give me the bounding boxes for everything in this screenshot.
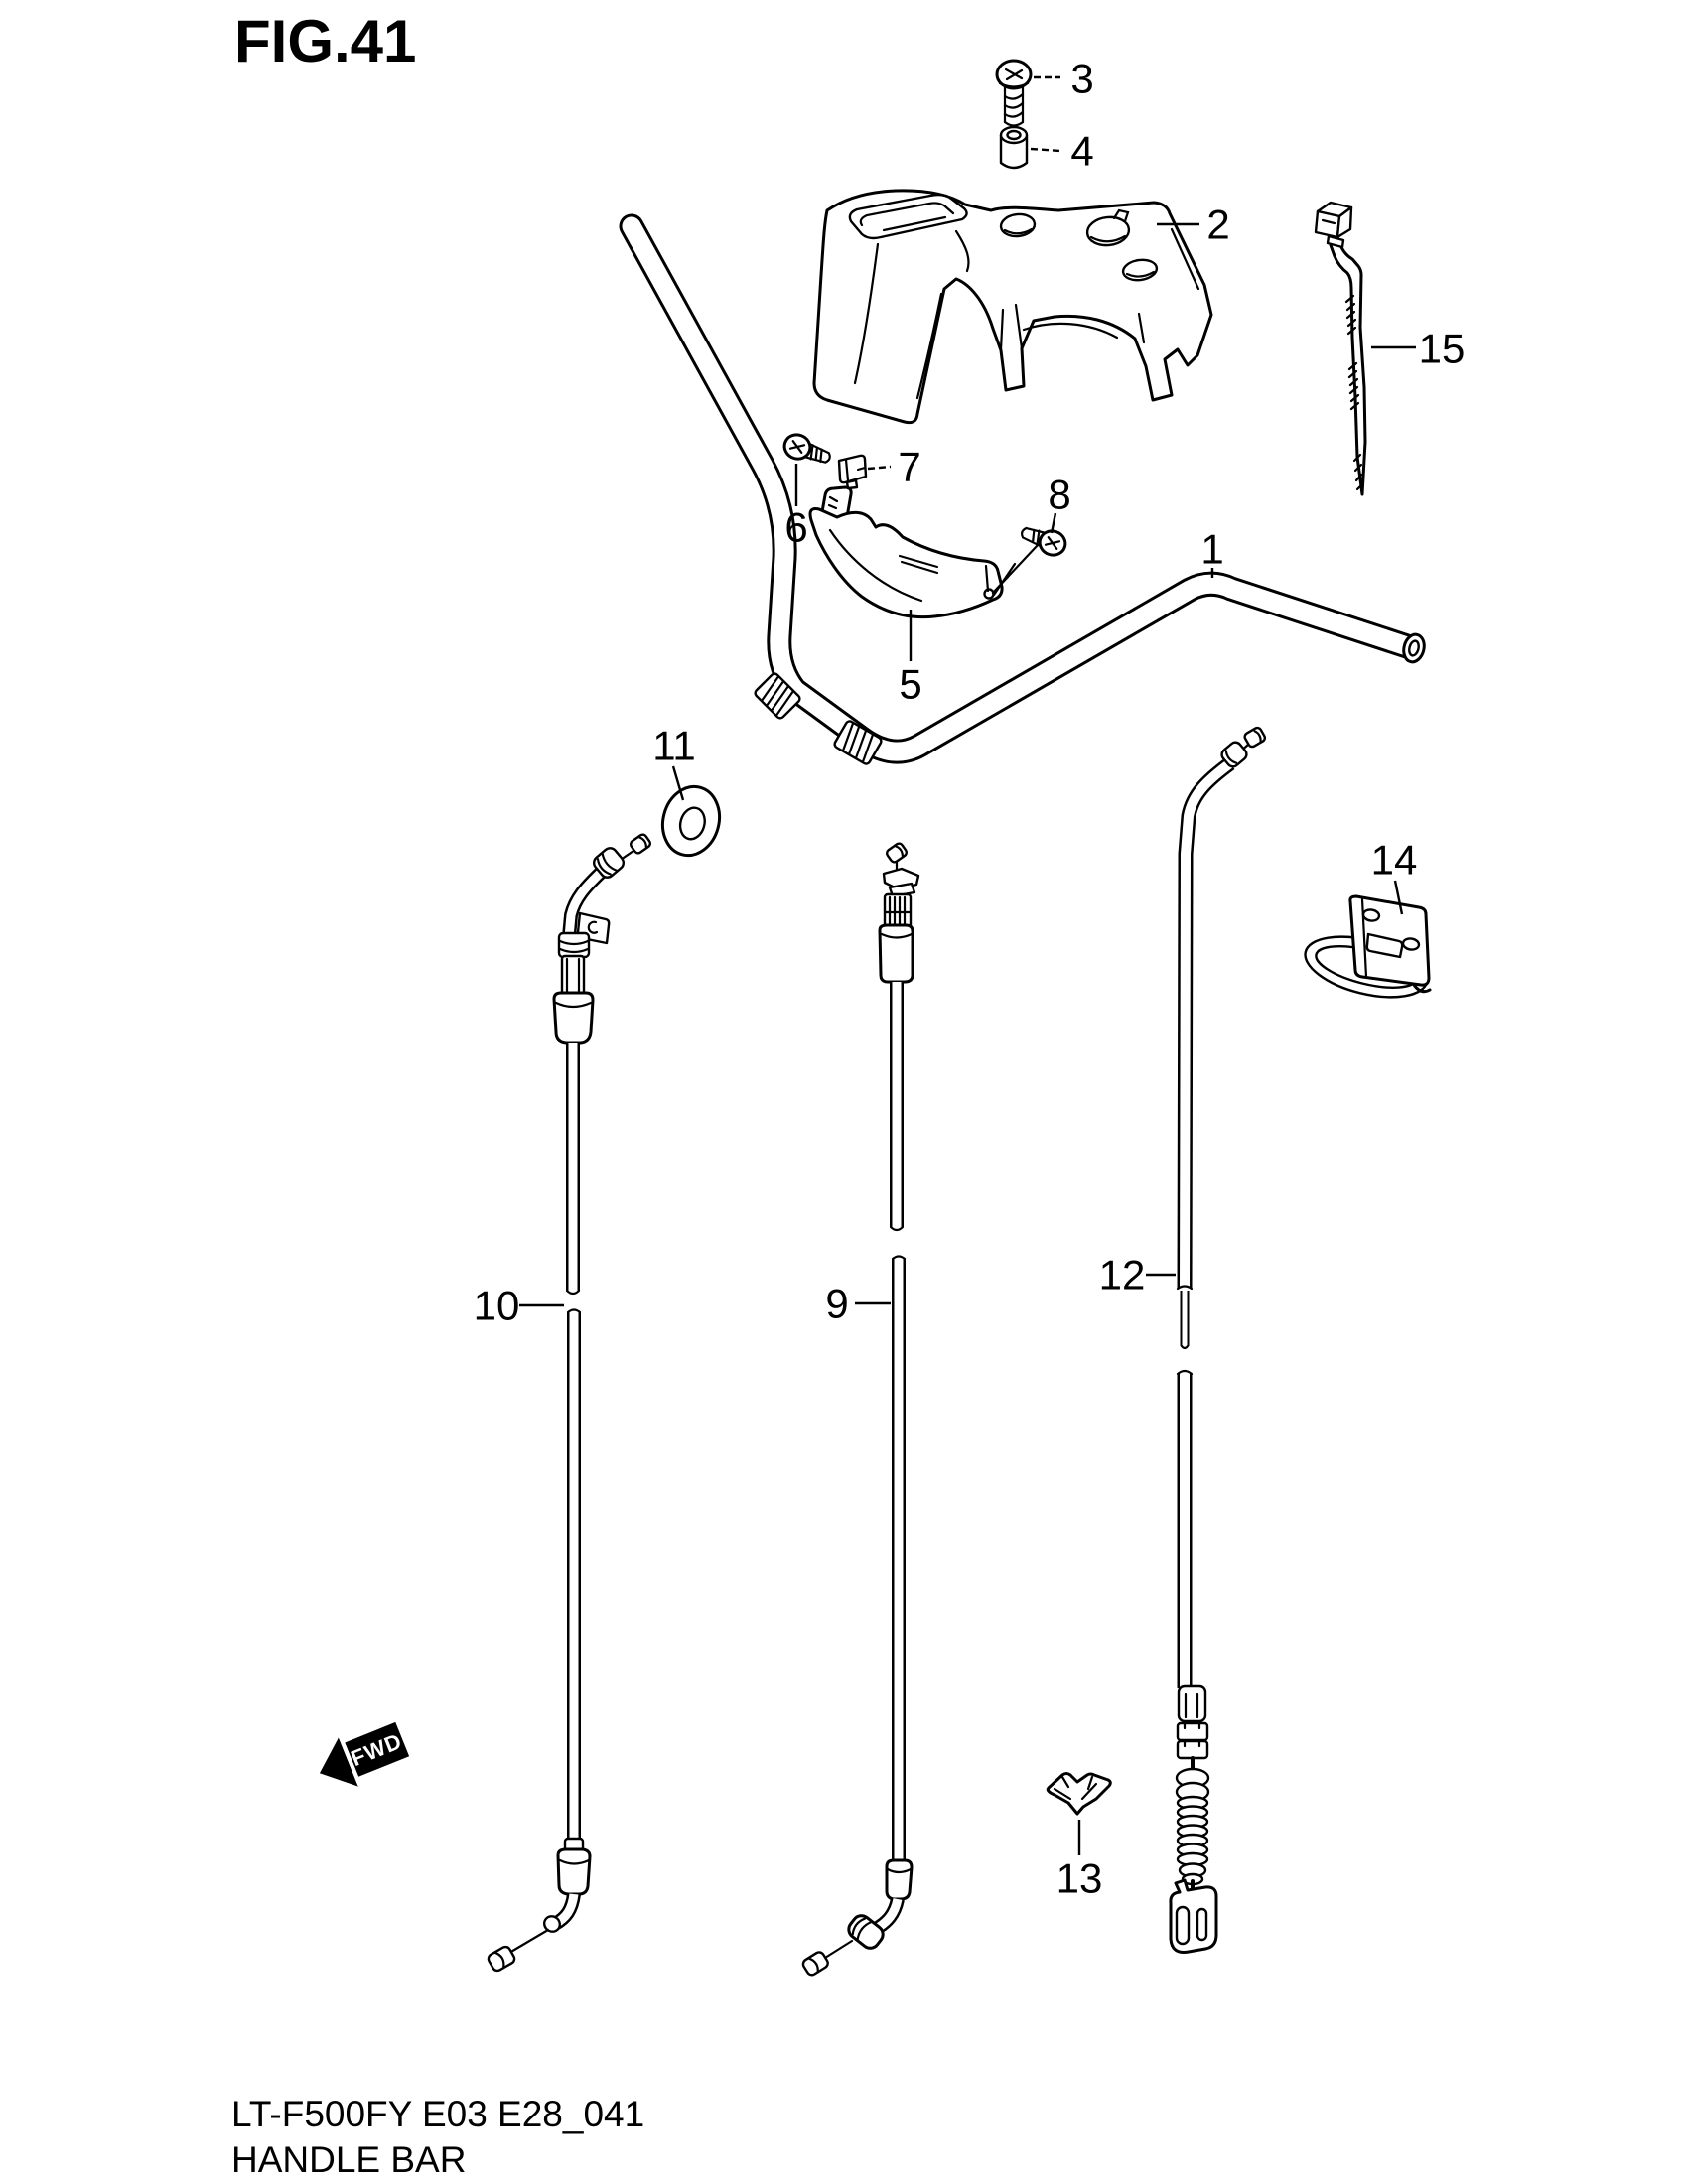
callout-2: 2 [1206,202,1229,248]
leader-lines [519,77,1416,1855]
handlebar-cover-drawing [814,191,1211,423]
screw-6-drawing [781,431,834,470]
leader-7 [868,467,891,469]
callout-5: 5 [899,661,921,708]
callout-12: 12 [1099,1252,1146,1298]
callout-13: 13 [1056,1855,1103,1902]
washer-drawing [655,780,727,862]
callout-1: 1 [1200,526,1223,573]
cable-9-drawing [801,842,918,1977]
callout-8: 8 [1048,472,1070,518]
screw-8-drawing [993,521,1068,595]
guard-drawing [810,487,1002,617]
parts-diagram-page: FWD 1 2 3 4 5 6 7 8 9 10 11 12 13 14 15 [0,0,1688,2184]
cable-tie-drawing [1316,203,1365,494]
spacer-drawing [1001,127,1027,168]
callout-4: 4 [1070,128,1093,175]
clamp-drawing [1048,1774,1110,1815]
callout-11: 11 [652,723,696,769]
clip-drawing [839,456,866,488]
cable-10-drawing [487,833,651,1973]
fwd-arrow: FWD [310,1715,412,1798]
parts-diagram: FWD 1 2 3 4 5 6 7 8 9 10 11 12 13 14 15 [0,0,1688,2184]
footer-figure-name: HANDLE BAR [231,2139,466,2180]
callout-10: 10 [474,1283,520,1329]
footer-model-code: LT-F500FY E03 E28_041 [231,2094,644,2134]
callout-labels: 1 2 3 4 5 6 7 8 9 10 11 12 13 14 15 [474,56,1466,1902]
bracket-drawing [1299,896,1433,1008]
callout-9: 9 [825,1281,848,1327]
leader-4 [1031,149,1060,151]
callout-14: 14 [1371,837,1418,884]
screw-3-drawing [997,61,1031,126]
figure-title: FIG.41 [234,8,416,74]
callout-7: 7 [898,444,920,490]
callout-3: 3 [1070,56,1093,102]
cable-12-drawing [1171,727,1266,1953]
callout-15: 15 [1419,326,1466,372]
callout-6: 6 [784,504,807,551]
